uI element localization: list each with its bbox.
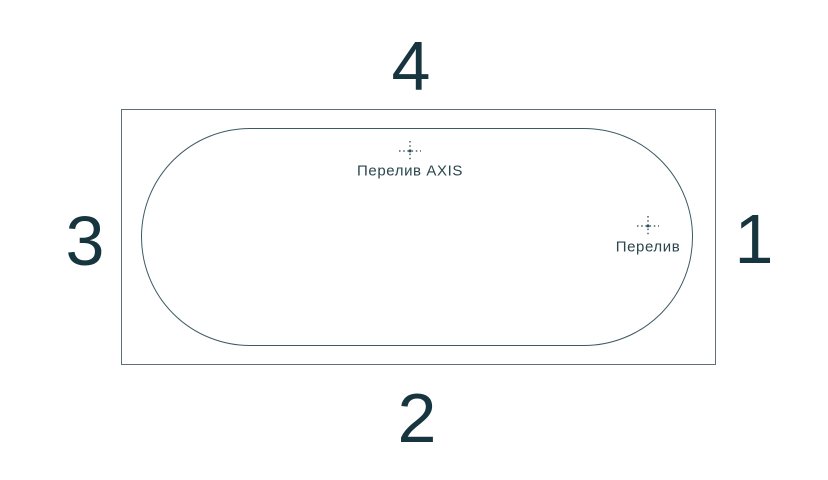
overflow-label: Перелив bbox=[616, 239, 681, 256]
overflow-axis-crosshair-icon bbox=[397, 140, 423, 162]
overflow-axis-label: Перелив AXIS bbox=[357, 163, 463, 180]
side-number-bottom: 2 bbox=[398, 383, 437, 453]
side-number-top: 4 bbox=[392, 31, 431, 101]
overflow-crosshair-icon bbox=[635, 215, 661, 237]
bathtub-scheme-canvas: 4 2 3 1 Перелив AXIS Перелив bbox=[0, 0, 828, 480]
side-number-right: 1 bbox=[735, 204, 774, 274]
side-number-left: 3 bbox=[66, 206, 105, 276]
